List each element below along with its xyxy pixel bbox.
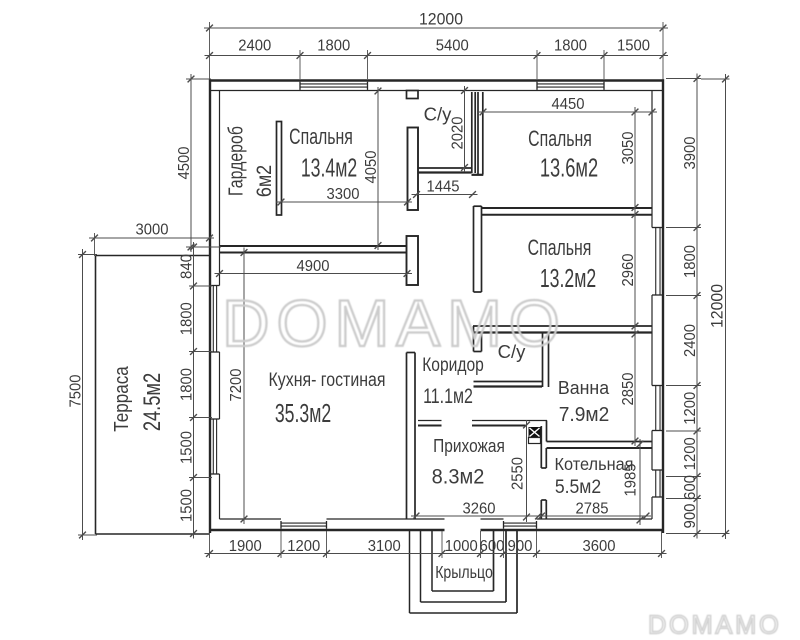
svg-text:2850: 2850 xyxy=(620,373,637,406)
svg-text:1500: 1500 xyxy=(178,489,195,522)
svg-text:7500: 7500 xyxy=(67,375,84,408)
svg-text:Ванна: Ванна xyxy=(558,378,610,398)
svg-text:2020: 2020 xyxy=(449,117,466,150)
svg-text:35.3м2: 35.3м2 xyxy=(275,399,331,428)
svg-text:24.5м2: 24.5м2 xyxy=(139,373,166,431)
svg-text:1800: 1800 xyxy=(178,302,195,335)
svg-text:840: 840 xyxy=(178,254,195,279)
svg-text:600: 600 xyxy=(682,475,699,500)
svg-text:2550: 2550 xyxy=(509,457,526,490)
svg-text:1500: 1500 xyxy=(617,37,650,54)
svg-text:11.1м2: 11.1м2 xyxy=(423,384,473,408)
svg-text:4900: 4900 xyxy=(297,258,330,275)
svg-text:5.5м2: 5.5м2 xyxy=(555,475,601,497)
svg-text:600: 600 xyxy=(480,538,505,555)
svg-text:3900: 3900 xyxy=(682,137,699,170)
svg-text:1200: 1200 xyxy=(682,392,699,425)
svg-text:1200: 1200 xyxy=(287,538,320,555)
svg-text:900: 900 xyxy=(682,504,699,529)
svg-text:Крыльцо: Крыльцо xyxy=(435,562,493,582)
svg-text:1900: 1900 xyxy=(229,538,262,555)
svg-text:13.6м2: 13.6м2 xyxy=(540,153,598,182)
svg-text:Спальня: Спальня xyxy=(289,124,353,149)
svg-text:5400: 5400 xyxy=(436,37,469,54)
svg-text:3300: 3300 xyxy=(327,186,360,203)
svg-text:900: 900 xyxy=(508,538,533,555)
svg-text:1985: 1985 xyxy=(622,464,639,497)
svg-text:Терраса: Терраса xyxy=(110,366,133,432)
svg-text:2785: 2785 xyxy=(576,500,609,517)
svg-text:3600: 3600 xyxy=(583,538,616,555)
svg-text:2400: 2400 xyxy=(238,37,271,54)
svg-text:С/у: С/у xyxy=(424,104,453,125)
svg-text:Спальня: Спальня xyxy=(528,126,592,151)
svg-text:3260: 3260 xyxy=(463,500,496,517)
svg-text:6м2: 6м2 xyxy=(253,165,277,197)
svg-text:4450: 4450 xyxy=(552,96,585,113)
svg-text:3000: 3000 xyxy=(136,221,169,238)
svg-text:12000: 12000 xyxy=(419,10,463,28)
svg-text:1200: 1200 xyxy=(682,437,699,470)
svg-text:1800: 1800 xyxy=(682,245,699,278)
svg-text:Гардероб: Гардероб xyxy=(225,126,247,196)
svg-text:12000: 12000 xyxy=(708,284,726,328)
svg-text:7200: 7200 xyxy=(228,369,245,402)
svg-text:Спальня: Спальня xyxy=(528,235,592,260)
svg-text:1000: 1000 xyxy=(445,538,478,555)
svg-text:DOMAMO: DOMAMO xyxy=(648,612,782,640)
svg-text:3050: 3050 xyxy=(620,132,637,165)
svg-text:Прихожая: Прихожая xyxy=(433,436,505,457)
svg-text:DOMAMO: DOMAMO xyxy=(222,286,568,360)
svg-text:2400: 2400 xyxy=(682,324,699,357)
svg-text:4050: 4050 xyxy=(363,151,380,184)
svg-text:2960: 2960 xyxy=(620,254,637,287)
svg-text:Кухня- гостиная: Кухня- гостиная xyxy=(269,368,386,390)
svg-text:1500: 1500 xyxy=(178,431,195,464)
svg-text:7.9м2: 7.9м2 xyxy=(559,404,609,426)
svg-text:8.3м2: 8.3м2 xyxy=(432,465,485,489)
svg-text:1800: 1800 xyxy=(317,37,350,54)
svg-text:4500: 4500 xyxy=(176,147,193,180)
svg-text:3100: 3100 xyxy=(368,538,401,555)
svg-text:13.4м2: 13.4м2 xyxy=(301,153,357,182)
svg-text:1445: 1445 xyxy=(427,178,460,195)
svg-text:1800: 1800 xyxy=(178,368,195,401)
svg-text:1800: 1800 xyxy=(554,37,587,54)
